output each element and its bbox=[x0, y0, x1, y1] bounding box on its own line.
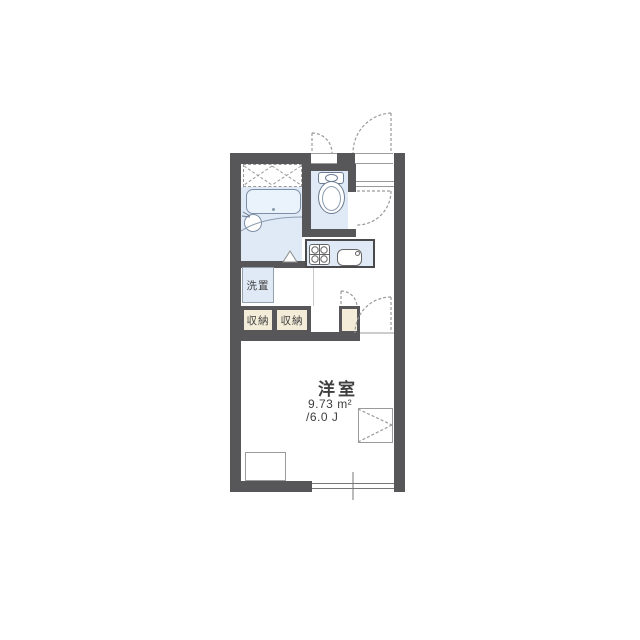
closet-left-label: 収納 bbox=[243, 310, 273, 330]
room-area-jo: /6.0 J bbox=[306, 410, 366, 424]
service-door-arc bbox=[312, 133, 332, 153]
service-door-opening bbox=[311, 153, 337, 164]
wall-bottom-segment bbox=[241, 481, 312, 492]
room-door-arc bbox=[355, 297, 391, 333]
wall-bath-toilet-divider bbox=[302, 164, 311, 237]
bathtub-drain bbox=[272, 208, 275, 211]
stove-icon bbox=[309, 244, 330, 265]
wall-right bbox=[394, 153, 405, 492]
wall-top-segment-a bbox=[241, 153, 311, 164]
furniture-outline bbox=[245, 452, 286, 481]
floor-boundary-line bbox=[313, 268, 314, 306]
toilet-door-arc bbox=[357, 191, 391, 225]
bath-cabinet-strip bbox=[243, 164, 302, 187]
wall-top-segment-b bbox=[337, 153, 355, 164]
washer-label: 洗置 bbox=[242, 267, 274, 303]
wall-toilet-bottom bbox=[302, 229, 356, 237]
entry-door-arc bbox=[353, 113, 391, 153]
sliding-window bbox=[312, 481, 394, 492]
shoe-box-door-arc bbox=[341, 291, 357, 307]
toilet-bowl-inner bbox=[322, 186, 341, 211]
shoe-box-cell bbox=[342, 309, 357, 331]
room-area-sqm: 9.73 m² bbox=[308, 397, 368, 411]
sink-faucet bbox=[355, 251, 360, 256]
floorplan-page: { "floorplan": { "main_room": { "name": … bbox=[0, 0, 640, 640]
wall-toilet-right bbox=[348, 164, 356, 192]
closet-right-label: 収納 bbox=[277, 310, 307, 330]
entry-step-line bbox=[356, 181, 394, 187]
plan-annotations bbox=[0, 0, 640, 640]
washbasin bbox=[244, 214, 262, 232]
entry-door-opening bbox=[355, 153, 393, 164]
